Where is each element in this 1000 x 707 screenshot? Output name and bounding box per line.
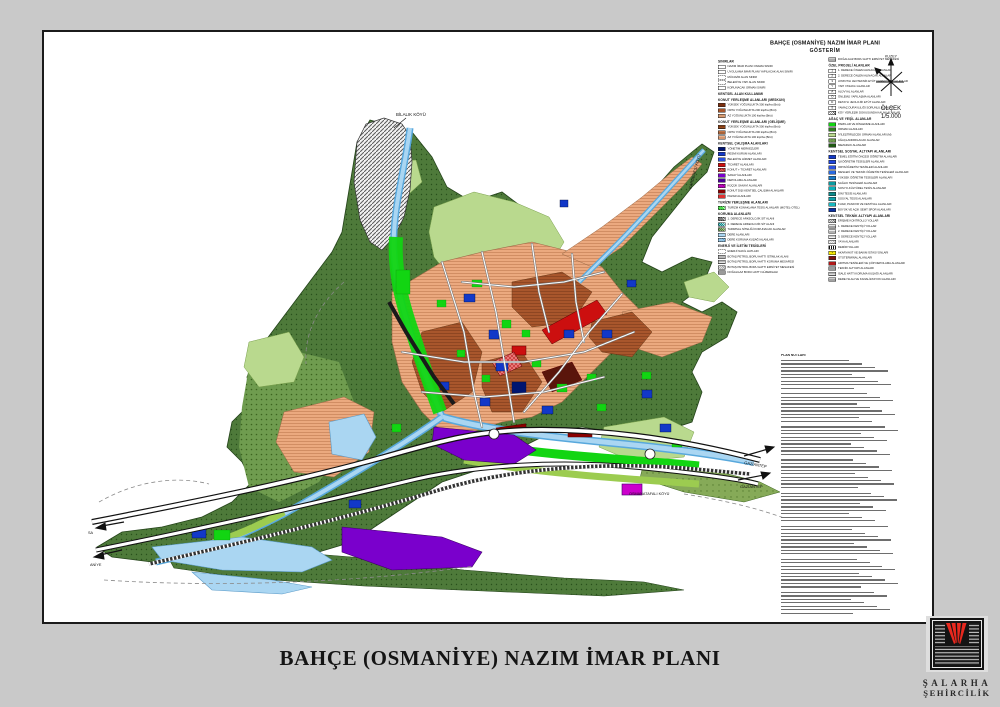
- plan-notes-lines: [781, 360, 899, 614]
- legend-swatch: D: [829, 101, 837, 105]
- plan-note-line: [781, 609, 890, 610]
- plan-note-line: [781, 566, 882, 567]
- legend-item-label: AĞAÇLANDIRILACAK ALANLAR: [838, 139, 880, 142]
- legend-item: MÜCAVİR ALAN SINIRI: [718, 75, 822, 79]
- plan-note-line: [781, 592, 874, 593]
- legend-item: SANAYİ ALANLARI: [718, 173, 822, 177]
- legend-swatch: [829, 246, 837, 250]
- plan-note-line: [781, 410, 882, 411]
- plan-note-line: [781, 569, 895, 570]
- legend-section-header: KENTSEL TEKNİK ALTYAPI ALANLARI: [829, 214, 933, 218]
- legend-swatch: [829, 272, 837, 276]
- legend-item-label: TARIMSAL NİTELİĞİ KORUNACAK ALANLAR: [728, 228, 786, 231]
- legend-swatch: [718, 114, 726, 118]
- plan-note-line: [781, 573, 859, 574]
- plan-note-line: [781, 595, 887, 596]
- legend-item-label: 2. DERECE ARKEOLOJİK SİT ALANI: [728, 223, 775, 226]
- plan-note-line: [781, 487, 858, 488]
- legend-item-label: KORUNACAK ORMAN SINIRI: [728, 86, 766, 89]
- company-name-line2: ŞEHİRCİLİK: [914, 688, 1000, 698]
- legend-item-label: MESLEKİ VE TEKNİK ÖĞRETİM TESİSLERİ ALAN…: [838, 171, 908, 174]
- legend-item: MESLEKİ VE TEKNİK ÖĞRETİM TESİSLERİ ALAN…: [829, 171, 933, 175]
- legend-item: BELEDİYE HİZMET ALANLARI: [718, 157, 822, 161]
- legend-swatch: [718, 184, 726, 188]
- legend-swatch: [718, 271, 726, 275]
- legend-item-label: BÜYÜK VE AÇIK SEMT SPOR ALANLARI: [838, 208, 891, 211]
- plan-note-line: [781, 533, 865, 534]
- legend-item-label: BOTAŞ PETROL BORU HATTI KORUMA MESAFESİ: [728, 261, 794, 264]
- legend-item-label: BELEDİYE HİZMET ALANLARI: [728, 158, 767, 161]
- legend-item: ORTA YOĞUNLUKTA 200 kişi/ha (Brüt): [718, 108, 822, 112]
- legend-swatch: [829, 58, 837, 62]
- legend-item: KÜÇÜK SANAYİ ALANLARI: [718, 184, 822, 188]
- legend-item: ORTAÖĞRETİM TESİSLERİ ALANLARI: [829, 165, 933, 169]
- legend-item: NAZIM İMAR PLANI ONAMA SINIRI: [718, 65, 822, 69]
- legend-item: BOTAŞ PETROL BORU HATTI EMNİYET MESAFESİ: [718, 265, 822, 269]
- plan-note-line: [781, 513, 849, 514]
- legend-swatch: [718, 168, 726, 172]
- plan-note-line: [781, 459, 853, 460]
- legend-swatch: [718, 108, 726, 112]
- plan-note-line: [781, 463, 866, 464]
- legend-item: FUAR, PANAYIR VE FESTİVAL ALANLARI: [829, 202, 933, 206]
- label-left-upper: SA: [88, 531, 94, 535]
- legend-item: 1. DERECE ARKEOLOJİK SİT ALANI: [718, 217, 822, 221]
- compass-north-label: KUZEY: [885, 55, 898, 59]
- legend-item-label: TEMEL EĞİTİM ÖNCESİ ÖĞRETİM ALANLARI: [838, 155, 897, 158]
- legend-swatch: [829, 240, 837, 244]
- legend-item: YÜKSEK ÖĞRETİM TESİSLERİ ALANLARI: [829, 176, 933, 180]
- plan-note-line: [781, 417, 859, 418]
- plan-note-line: [781, 360, 849, 361]
- legend-item-label: ERİŞME KONTROLLÜ YOLLAR: [838, 220, 878, 223]
- legend-item-label: TİCARET ALANLARI: [728, 163, 754, 166]
- plan-note-line: [781, 606, 877, 607]
- legend-item: YÜKSEK YOĞUNLUKTA 300 kişi/ha (Brüt): [718, 103, 822, 107]
- plan-note-line: [781, 529, 852, 530]
- plan-note-line: [781, 493, 871, 494]
- legend-section-header: KONUT YERLEŞME ALANLARI (GELİŞME): [718, 120, 822, 124]
- legend-swatch: 1: [829, 69, 837, 73]
- plan-note-line: [781, 400, 893, 401]
- legend-item-label: 2. DERECE KENTİÇİ YOLLAR: [838, 230, 876, 233]
- plan-note-line: [781, 454, 890, 455]
- legend-item-label: SAĞLIK TESİSLERİ ALANLARI: [838, 182, 877, 185]
- legend-item: RESMİ KURUM ALANLARI: [718, 152, 822, 156]
- legend-column: SINIRLARNAZIM İMAR PLANI ONAMA SINIRIUYG…: [718, 58, 822, 276]
- plan-note-line: [781, 477, 868, 478]
- legend-item-label: FUAR, PANAYIR VE FESTİVAL ALANLARI: [838, 203, 891, 206]
- legend-item: ORTA YOĞUNLUKTA 200 kişi/ha (Brüt): [718, 130, 822, 134]
- legend-swatch: [829, 277, 837, 281]
- legend-swatch: [718, 152, 726, 156]
- plan-note-line: [781, 562, 870, 563]
- legend-item-label: RESMİ KURUM ALANLARI: [728, 153, 762, 156]
- company-name-line1: ŞALARHA: [914, 678, 1000, 688]
- plan-note-line: [781, 480, 881, 481]
- legend-section-header: KENTSEL ALAN KULLANIMI: [718, 92, 822, 96]
- legend-item-label: AKARYAKIT VE BAKIM İSTASYONLARI: [838, 251, 888, 254]
- plan-note-line: [781, 447, 864, 448]
- plan-note-line: [781, 470, 892, 471]
- legend-item: ARITMA TESİSLERİ VE ÇÖP DEPOLAMA ALANLAR…: [829, 261, 933, 265]
- legend-swatch: [829, 176, 837, 180]
- legend-item-label: TEKNİK ALTYAPI ALANLARI: [838, 267, 874, 270]
- legend-item-label: OTOTERMİNAL ALANLARI: [838, 257, 872, 260]
- legend-title: BAHÇE (OSMANİYE) NAZIM İMAR PLANI: [718, 40, 932, 46]
- legend-item-label: DERE ALANLARI: [728, 233, 750, 236]
- legend-item-label: YÜKSEK YOĞUNLUKTA 300 kişi/ha (Brüt): [728, 104, 781, 107]
- company-logo-icon: [926, 616, 988, 672]
- legend-item: DERE ISLAH VE KANALİZASYON ALANLARI: [829, 277, 933, 281]
- legend-item: BOTAŞ PETROL BORU HATTI KORUMA MESAFESİ: [718, 260, 822, 264]
- plan-note-line: [781, 546, 867, 547]
- plan-note-line: [781, 499, 897, 500]
- plan-note-line: [781, 450, 877, 451]
- plan-note-line: [781, 381, 878, 382]
- legend-swatch: [829, 219, 837, 223]
- legend-swatch: Ö: [829, 95, 837, 99]
- legend-swatch: [829, 202, 837, 206]
- legend-item-label: DEMİRYOLLARI: [838, 246, 859, 249]
- plan-note-line: [781, 384, 891, 385]
- legend-item-label: UYGULAMA İMAR PLANI YAPILACAK ALAN SINIR…: [728, 71, 793, 74]
- legend-swatch: [718, 157, 726, 161]
- plan-note-line: [781, 586, 861, 587]
- legend-item-label: 3. DERECE KENTİÇİ YOLLAR: [838, 235, 876, 238]
- legend-item-label: ENERJİ NAKİL HATLARI: [728, 250, 759, 253]
- plan-note-line: [781, 397, 880, 398]
- legend-item: DEPOLAMA ALANLARI: [718, 179, 822, 183]
- legend-swatch: [718, 81, 726, 85]
- legend-swatch: [718, 179, 726, 183]
- plan-note-line: [781, 421, 872, 422]
- legend-item-label: ORTA YOĞUNLUKTA 200 kişi/ha (Brüt): [728, 109, 777, 112]
- plan-note-line: [781, 374, 852, 375]
- legend-item: 1. DERECE KENTİÇİ YOLLAR: [829, 224, 933, 228]
- legend-swatch: [829, 197, 837, 201]
- plan-note-line: [781, 599, 851, 600]
- plan-note-line: [781, 407, 870, 408]
- legend-item-label: İLKÖĞRETİM TESİSLERİ ALANLARI: [838, 161, 884, 164]
- legend-swatch: [829, 256, 837, 260]
- plan-title: BAHÇE (OSMANİYE) NAZIM İMAR PLANI: [0, 646, 1000, 671]
- legend-item-label: BELEDİYE YAPI ALAN SINIRI: [728, 81, 766, 84]
- legend-swatch: [829, 187, 837, 191]
- legend-swatch: 2: [829, 74, 837, 78]
- plan-note-line: [781, 553, 893, 554]
- legend-item: İSALE HATTI KORUMA KUŞAĞI ALANLARI: [829, 272, 933, 276]
- legend-swatch: [718, 163, 726, 167]
- legend-section-header: KORUMA ALANLARI: [718, 212, 822, 216]
- plan-note-line: [781, 550, 880, 551]
- legend-swatch: [718, 147, 726, 151]
- legend-swatch: A: [829, 90, 837, 94]
- legend-item: SAĞLIK TESİSLERİ ALANLARI: [829, 181, 933, 185]
- legend-item-label: SANAYİ ALANLARI: [728, 174, 752, 177]
- legend-item-label: AZ YOĞUNLUKTA 100 kişi/ha (Brüt): [728, 136, 773, 139]
- legend-swatch: [829, 155, 837, 159]
- plan-note-line: [781, 473, 855, 474]
- legend-item-label: SOSYAL TESİS ALANLARI: [838, 198, 872, 201]
- legend-item: SOSYO-KÜLTÜREL TESİS ALANLARI: [829, 187, 933, 191]
- legend-swatch: [829, 138, 837, 142]
- plan-note-line: [781, 370, 888, 371]
- legend-swatch: [718, 189, 726, 193]
- legend-item-label: YÖNETİM MERKEZLERİ: [728, 147, 759, 150]
- legend-item-label: BOTAŞ PETROL BORU HATTI EMNİYET MESAFESİ: [728, 266, 795, 269]
- legend-item-label: ARITMA TESİSLERİ VE ÇÖP DEPOLAMA ALANLAR…: [838, 262, 905, 265]
- legend-swatch: S: [829, 106, 837, 110]
- legend-item-label: 1. DERECE KENTİÇİ YOLLAR: [838, 225, 876, 228]
- legend-item-label: KONUT DIŞI KENTSEL ÇALIŞMA ALANLARI: [728, 190, 784, 193]
- plan-page: BİLALIK KÖYÜ KARDERESİ KÖYÜ OSMANATAFALI…: [0, 0, 1000, 707]
- legend-item: 3. DERECE KENTİÇİ YOLLAR: [829, 235, 933, 239]
- legend-section-header: KENTSEL ÇALIŞMA ALANLARI: [718, 142, 822, 146]
- legend-item: İLKÖĞRETİM TESİSLERİ ALANLARI: [829, 160, 933, 164]
- legend-swatch: [829, 208, 837, 212]
- plan-note-line: [781, 437, 874, 438]
- label-left-lower: ANİYE: [90, 562, 102, 567]
- legend-item-label: KÜÇÜK SANAYİ ALANLARI: [728, 184, 763, 187]
- legend-item-label: AZ YOĞUNLUKTA 100 kişi/ha (Brüt): [728, 114, 773, 117]
- plan-note-line: [781, 433, 861, 434]
- legend-item-label: ORTAÖĞRETİM TESİSLERİ ALANLARI: [838, 166, 888, 169]
- legend-item: BÜYÜK VE AÇIK SEMT SPOR ALANLARI: [829, 208, 933, 212]
- legend-swatch: [718, 255, 726, 259]
- legend-item: 2. DERECE ARKEOLOJİK SİT ALANI: [718, 222, 822, 226]
- legend-swatch: [718, 136, 726, 140]
- legend-swatch: [829, 181, 837, 185]
- label-bilalik-koyu: BİLALIK KÖYÜ: [396, 112, 426, 117]
- legend-item-label: DEPOLAMA ALANLARI: [728, 179, 758, 182]
- legend-swatch: [829, 122, 837, 126]
- legend-swatch: [718, 217, 726, 221]
- company-logo: ŞALARHA ŞEHİRCİLİK: [914, 616, 1000, 698]
- plan-note-line: [781, 583, 898, 584]
- label-gaziantep-upper: GAZİANTEP: [744, 460, 768, 469]
- plan-note-line: [781, 579, 885, 580]
- legend-swatch: Y: [829, 85, 837, 89]
- legend-section-header: SINIRLAR: [718, 60, 822, 64]
- plan-note-line: [781, 536, 878, 537]
- legend-item: YÜKSEK YOĞUNLUKTA 300 kişi/ha (Brüt): [718, 125, 822, 129]
- legend-item-label: TURİZM KONAKLAMA TESİS ALANLARI (MOTEL-O…: [728, 206, 800, 209]
- legend-swatch: [829, 224, 837, 228]
- legend-item: KONUT + TİCARET ALANLARI: [718, 168, 822, 172]
- legend-item: TARIMSAL NİTELİĞİ KORUNACAK ALANLAR: [718, 228, 822, 232]
- legend-swatch: [829, 261, 837, 265]
- legend-swatch: [718, 173, 726, 177]
- plan-note-line: [781, 443, 851, 444]
- plan-notes: PLAN NOTLARI: [781, 354, 899, 624]
- scale-label: ÖLÇEK: [881, 105, 901, 112]
- legend-item-label: KONUT + TİCARET ALANLARI: [728, 169, 767, 172]
- legend-item: TEMEL EĞİTİM ÖNCESİ ÖĞRETİM ALANLARI: [829, 155, 933, 159]
- legend-item: DOĞALGAZ BORU HATTI GÜZERGAHI: [718, 271, 822, 275]
- legend-item: YAYA ALANLARI: [829, 240, 933, 244]
- legend-swatch: [829, 267, 837, 271]
- legend-swatch: [718, 130, 726, 134]
- plan-note-line: [781, 440, 887, 441]
- legend-swatch: 3: [829, 79, 837, 83]
- legend-swatch: [829, 111, 837, 115]
- legend-swatch: [718, 206, 726, 210]
- legend-item-label: MEZARLIK ALANLARI: [838, 144, 866, 147]
- legend-swatch: [718, 70, 726, 74]
- legend-swatch: [829, 165, 837, 169]
- scale-value: 1/5.000: [881, 114, 902, 120]
- legend-item: ERİŞME KONTROLLÜ YOLLAR: [829, 219, 933, 223]
- legend-swatch: [829, 160, 837, 164]
- plan-note-line: [781, 517, 862, 518]
- plan-note-line: [781, 539, 891, 540]
- legend-swatch: [718, 65, 726, 69]
- legend-item-label: DERE ISLAH VE KANALİZASYON ALANLARI: [838, 278, 896, 281]
- legend-item: YÖNETİM MERKEZLERİ: [718, 147, 822, 151]
- legend-item-label: NAZIM İMAR PLANI ONAMA SINIRI: [728, 65, 773, 68]
- legend-swatch: [718, 125, 726, 129]
- legend-swatch: [718, 228, 726, 232]
- legend-item-label: DİNİ TESİS ALANLARI: [838, 192, 867, 195]
- legend-item-label: YAYA ALANLARI: [838, 241, 859, 244]
- legend-item: AZ YOĞUNLUKTA 100 kişi/ha (Brüt): [718, 136, 822, 140]
- legend-item: 2. DERECE KENTİÇİ YOLLAR: [829, 230, 933, 234]
- plan-note-line: [781, 367, 875, 368]
- plan-note-line: [781, 430, 898, 431]
- legend-swatch: [718, 103, 726, 107]
- legend-item-label: PAZAR ALANLARI: [728, 195, 751, 198]
- legend-swatch: [718, 195, 726, 199]
- plan-note-line: [781, 559, 857, 560]
- legend-swatch: [718, 260, 726, 264]
- legend-swatch: [829, 230, 837, 234]
- plan-note-line: [781, 393, 867, 394]
- legend-item: UYGULAMA İMAR PLANI YAPILACAK ALAN SINIR…: [718, 70, 822, 74]
- label-osmanatafali-koyu: OSMANATAFALI KÖYÜ: [629, 492, 670, 496]
- legend-section-header: ENERJİ VE İLETİM TESİSLERİ: [718, 245, 822, 249]
- plan-note-line: [781, 602, 864, 603]
- plan-note-line: [781, 403, 857, 404]
- legend-swatch: [829, 144, 837, 148]
- plan-notes-title: PLAN NOTLARI: [781, 354, 846, 357]
- legend-item: TİCARET ALANLARI: [718, 163, 822, 167]
- legend-item: OTOTERMİNAL ALANLARI: [829, 256, 933, 260]
- legend-swatch: [718, 222, 726, 226]
- legend-item: DİNİ TESİS ALANLARI: [829, 192, 933, 196]
- plan-note-line: [781, 503, 860, 504]
- plan-note-line: [781, 377, 865, 378]
- plan-note-line: [781, 414, 895, 415]
- plan-note-line: [781, 506, 873, 507]
- legend-swatch: [718, 75, 726, 79]
- legend-item-label: ORTA YOĞUNLUKTA 200 kişi/ha (Brüt): [728, 131, 777, 134]
- legend-section-header: KENTSEL SOSYAL ALTYAPI ALANLARI: [829, 150, 933, 154]
- legend-swatch: [829, 192, 837, 196]
- legend-item-label: SOSYO-KÜLTÜREL TESİS ALANLARI: [838, 187, 886, 190]
- legend-item: BELEDİYE YAPI ALAN SINIRI: [718, 81, 822, 85]
- legend-item: SOSYAL TESİS ALANLARI: [829, 197, 933, 201]
- legend-item: TEKNİK ALTYAPI ALANLARI: [829, 267, 933, 271]
- legend-item-label: 1. DERECE ARKEOLOJİK SİT ALANI: [728, 218, 775, 221]
- plan-note-line: [781, 388, 854, 389]
- legend-item: DERE ALANLARI: [718, 233, 822, 237]
- plan-note-line: [781, 483, 894, 484]
- legend-item: AĞAÇLANDIRILACAK ALANLAR: [829, 138, 933, 142]
- legend-swatch: [829, 133, 837, 137]
- legend-swatch: [829, 128, 837, 132]
- plan-sheet: BİLALIK KÖYÜ KARDERESİ KÖYÜ OSMANATAFALI…: [42, 30, 934, 624]
- legend-section-header: KONUT YERLEŞME ALANLARI (MESKUN): [718, 98, 822, 102]
- legend-item: •AKARYAKIT VE BAKIM İSTASYONLARI: [829, 251, 933, 255]
- compass-rose: KUZEY ÖLÇEK 1/5.000: [856, 52, 926, 136]
- plan-note-line: [781, 526, 888, 527]
- legend-item-label: DERE KORUMA KUŞAĞI ALANLARI: [728, 239, 774, 242]
- legend-swatch: [718, 86, 726, 90]
- plan-note-line: [781, 613, 853, 614]
- legend-swatch: [718, 249, 726, 253]
- label-gaziantep-lower: GAZİANTEP: [740, 484, 763, 489]
- legend-item: ENERJİ NAKİL HATLARI: [718, 249, 822, 253]
- legend-swatch: [718, 238, 726, 242]
- legend-swatch: [718, 233, 726, 237]
- plan-note-line: [781, 496, 884, 497]
- legend-swatch: •: [829, 251, 837, 255]
- legend-item-label: YÜKSEK ÖĞRETİM TESİSLERİ ALANLARI: [838, 176, 892, 179]
- legend-item-label: DOĞALGAZ BORU HATTI GÜZERGAHI: [728, 271, 778, 274]
- legend-item-label: MÜCAVİR ALAN SINIRI: [728, 76, 758, 79]
- plan-note-line: [781, 466, 879, 467]
- plan-note-line: [781, 363, 862, 364]
- legend-item: BOTAŞ PETROL BORU HATTI İSTİMLAK ALANI: [718, 255, 822, 259]
- legend-item: MEZARLIK ALANLARI: [829, 144, 933, 148]
- plan-note-line: [781, 510, 886, 511]
- legend-item: TURİZM KONAKLAMA TESİS ALANLARI (MOTEL-O…: [718, 206, 822, 210]
- legend-swatch: [718, 265, 726, 269]
- legend-item: DERE KORUMA KUŞAĞI ALANLARI: [718, 238, 822, 242]
- legend-section-header: TURİZM YERLEŞME ALANLARI: [718, 201, 822, 205]
- legend-swatch: [829, 235, 837, 239]
- legend-item: KORUNACAK ORMAN SINIRI: [718, 86, 822, 90]
- legend-swatch: [829, 171, 837, 175]
- legend-item-label: İSALE HATTI KORUMA KUŞAĞI ALANLARI: [838, 272, 893, 275]
- plan-note-line: [781, 576, 872, 577]
- legend-item-label: BOTAŞ PETROL BORU HATTI İSTİMLAK ALANI: [728, 255, 789, 258]
- plan-note-line: [781, 426, 885, 427]
- legend-item: DEMİRYOLLARI: [829, 246, 933, 250]
- legend-item-label: YÜKSEK YOĞUNLUKTA 300 kişi/ha (Brüt): [728, 126, 781, 129]
- plan-note-line: [781, 543, 854, 544]
- legend-item: KONUT DIŞI KENTSEL ÇALIŞMA ALANLARI: [718, 189, 822, 193]
- plan-note-line: [781, 520, 875, 521]
- legend-item: PAZAR ALANLARI: [718, 195, 822, 199]
- legend-item: AZ YOĞUNLUKTA 100 kişi/ha (Brüt): [718, 114, 822, 118]
